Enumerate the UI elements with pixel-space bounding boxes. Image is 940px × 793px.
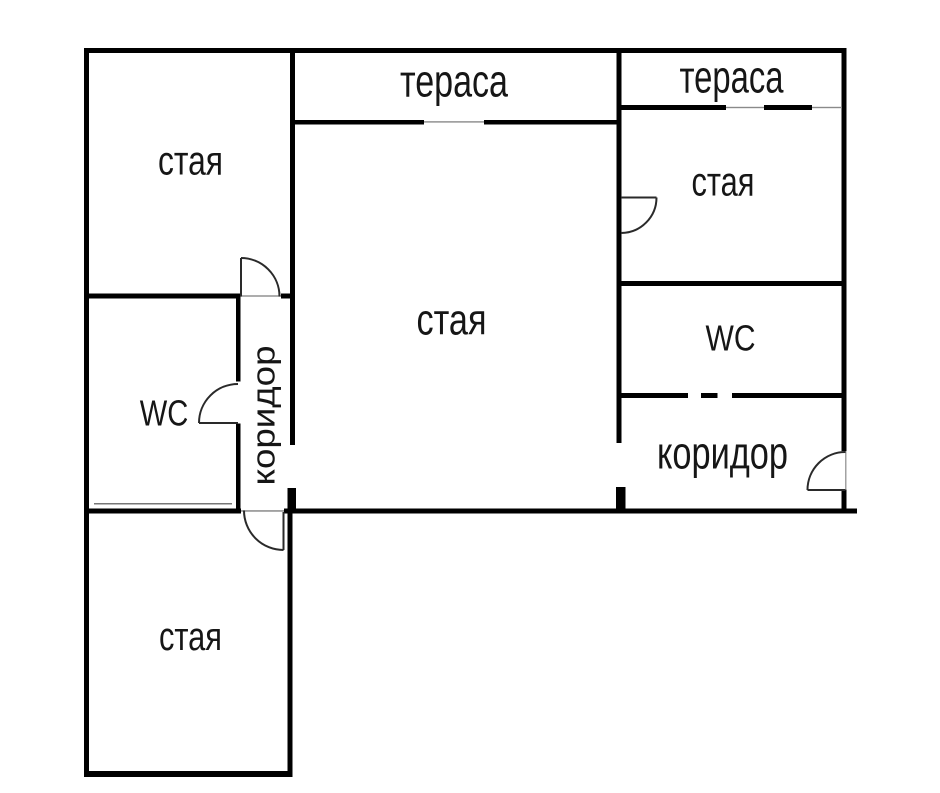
- svg-text:стая: стая: [692, 159, 755, 205]
- svg-text:стая: стая: [158, 138, 223, 184]
- svg-text:стая: стая: [417, 296, 487, 345]
- svg-text:тераса: тераса: [680, 51, 785, 102]
- svg-text:WC: WC: [706, 318, 756, 359]
- svg-text:тераса: тераса: [400, 56, 509, 107]
- svg-text:коридор: коридор: [246, 346, 282, 486]
- svg-text:стая: стая: [159, 615, 222, 659]
- svg-text:коридор: коридор: [657, 427, 788, 478]
- svg-text:WC: WC: [140, 393, 189, 434]
